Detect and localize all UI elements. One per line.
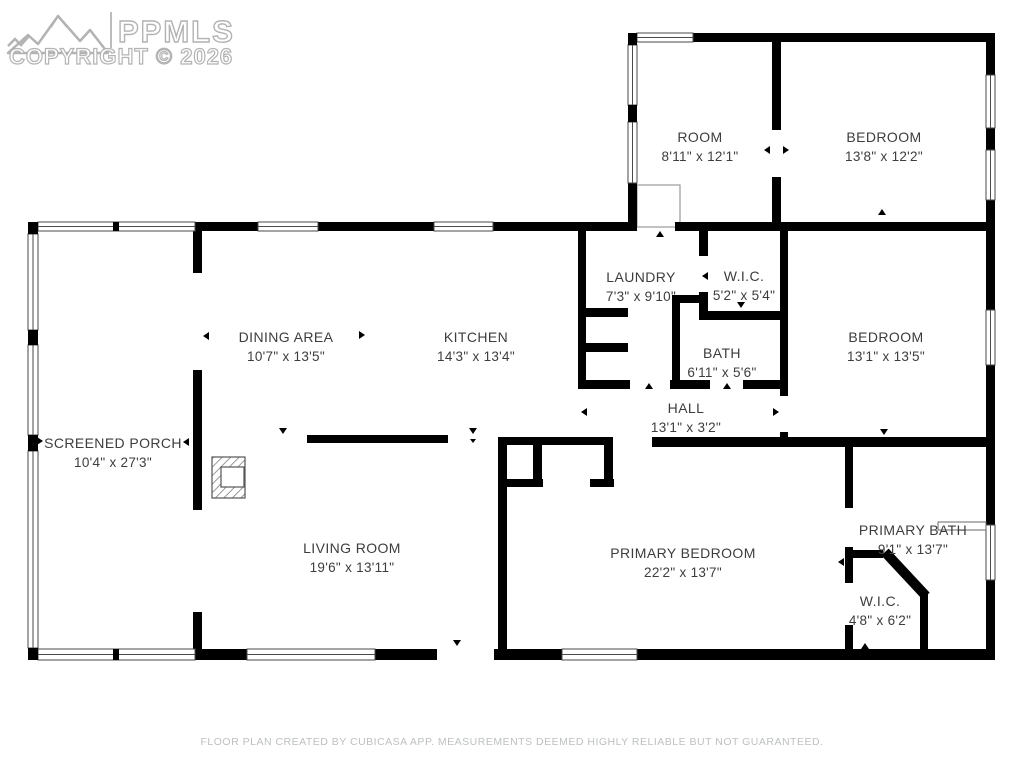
room-label-kitchen: KITCHEN 14'3" x 13'4" <box>437 327 515 367</box>
watermark-divider <box>110 12 112 48</box>
room-name: W.I.C. <box>713 266 775 286</box>
fireplace-icon <box>212 457 245 498</box>
room-name: BATH <box>687 343 756 363</box>
room-dims: 5'2" x 5'4" <box>713 286 775 306</box>
room-label-hall: HALL 13'1" x 3'2" <box>651 398 721 438</box>
room-name: HALL <box>651 398 721 418</box>
stairs-landing <box>637 185 680 227</box>
room-label-bedroom-upper: BEDROOM 13'8" x 12'2" <box>845 127 923 167</box>
room-label-wic-lower: W.I.C. 4'8" x 6'2" <box>849 591 911 631</box>
room-label-wic-upper: W.I.C. 5'2" x 5'4" <box>713 266 775 306</box>
room-label-primary-bedroom: PRIMARY BEDROOM 22'2" x 13'7" <box>610 543 756 583</box>
room-name: PRIMARY BATH <box>859 520 967 540</box>
room-name: KITCHEN <box>437 327 515 347</box>
room-name: BEDROOM <box>845 127 923 147</box>
disclaimer-text: FLOOR PLAN CREATED BY CUBICASA APP. MEAS… <box>0 736 1024 748</box>
room-label-bath: BATH 6'11" x 5'6" <box>687 343 756 383</box>
room-label-laundry: LAUNDRY 7'3" x 9'10" <box>606 267 676 307</box>
room-dims: 14'3" x 13'4" <box>437 347 515 367</box>
room-dims: 13'8" x 12'2" <box>845 147 923 167</box>
floorplan-canvas <box>0 0 1024 767</box>
room-name: LIVING ROOM <box>303 538 401 558</box>
room-name: PRIMARY BEDROOM <box>610 543 756 563</box>
room-name: SCREENED PORCH <box>44 433 182 453</box>
room-label-screened-porch: SCREENED PORCH 10'4" x 27'3" <box>44 433 182 473</box>
room-dims: 13'1" x 3'2" <box>651 418 721 438</box>
room-dims: 19'6" x 13'11" <box>303 558 401 578</box>
copyright-text: COPYRIGHT © 2026 <box>9 44 233 70</box>
room-dims: 8'11" x 12'1" <box>662 147 739 167</box>
room-label-primary-bath: PRIMARY BATH 9'1" x 13'7" <box>859 520 967 560</box>
room-dims: 4'8" x 6'2" <box>849 611 911 631</box>
room-dims: 7'3" x 9'10" <box>606 287 676 307</box>
room-dims: 13'1" x 13'5" <box>847 347 925 367</box>
room-label-bedroom-right: BEDROOM 13'1" x 13'5" <box>847 327 925 367</box>
room-dims: 6'11" x 5'6" <box>687 363 756 383</box>
room-dims: 10'7" x 13'5" <box>239 347 334 367</box>
floorplan-page: ROOM 8'11" x 12'1" BEDROOM 13'8" x 12'2"… <box>0 0 1024 767</box>
room-dims: 9'1" x 13'7" <box>859 540 967 560</box>
room-dims: 22'2" x 13'7" <box>610 563 756 583</box>
door-markers-layer <box>37 146 888 649</box>
room-label-room: ROOM 8'11" x 12'1" <box>662 127 739 167</box>
room-name: DINING AREA <box>239 327 334 347</box>
room-label-dining-area: DINING AREA 10'7" x 13'5" <box>239 327 334 367</box>
room-name: W.I.C. <box>849 591 911 611</box>
room-name: ROOM <box>662 127 739 147</box>
room-label-living-room: LIVING ROOM 19'6" x 13'11" <box>303 538 401 578</box>
room-name: BEDROOM <box>847 327 925 347</box>
room-name: LAUNDRY <box>606 267 676 287</box>
room-dims: 10'4" x 27'3" <box>44 453 182 473</box>
ppmls-watermark: PPMLS COPYRIGHT © 2026 <box>4 4 264 74</box>
